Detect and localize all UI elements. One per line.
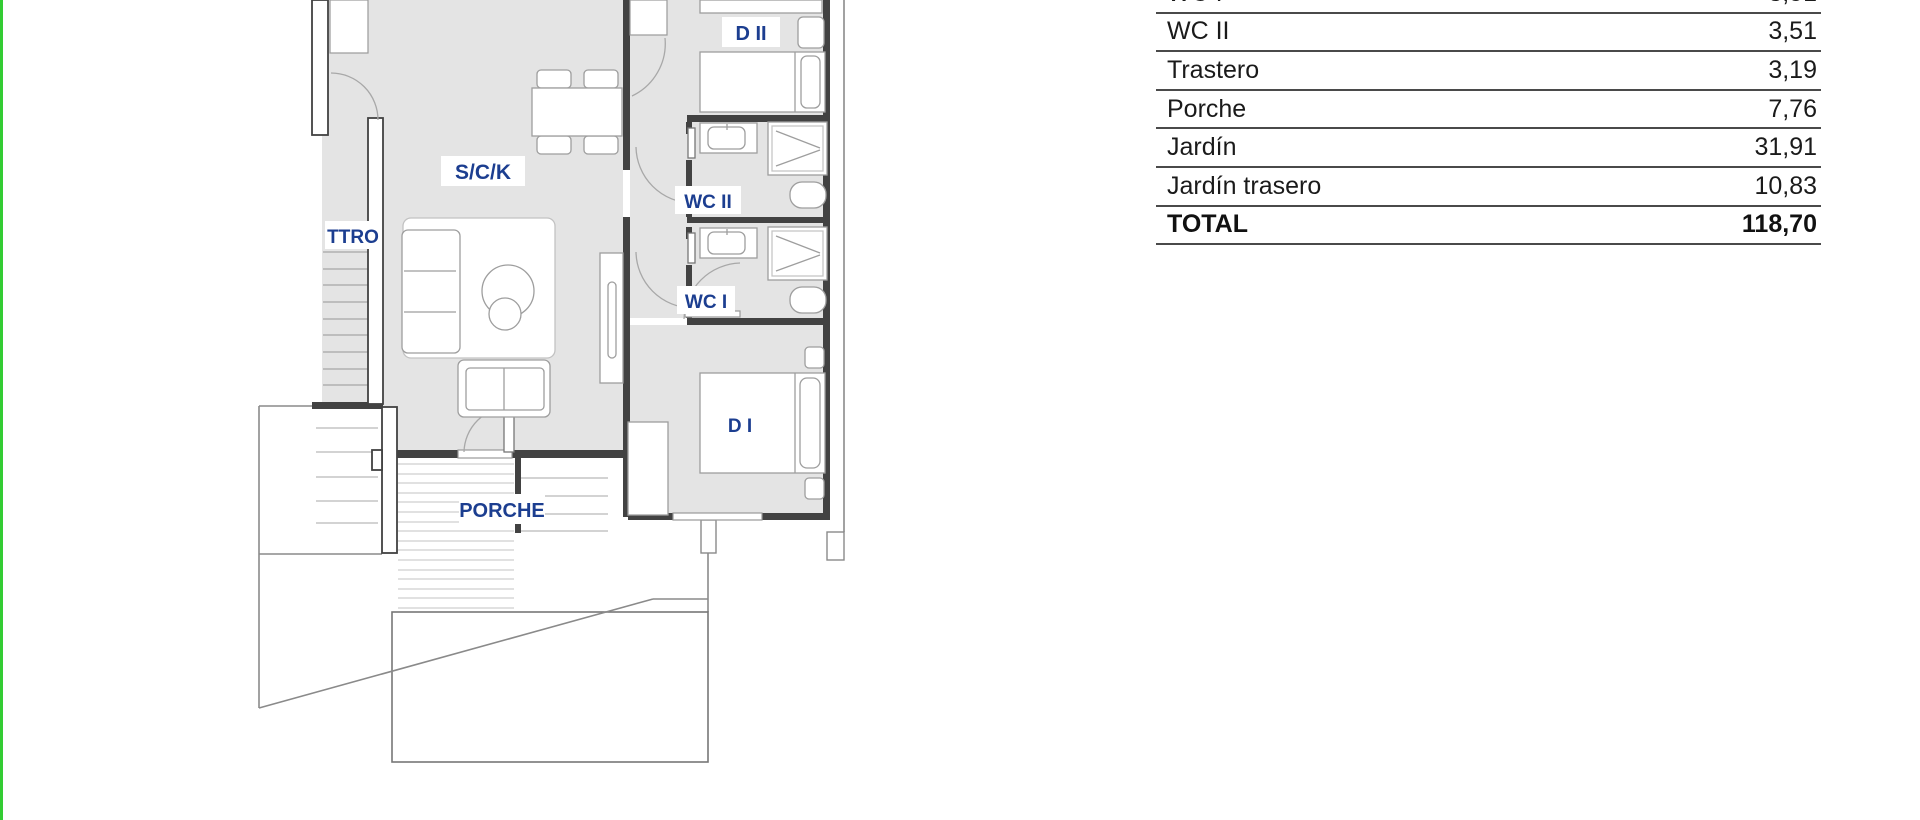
area-table-rows: WC I 3,51 WC II 3,51 Trastero 3,19 Porch… [1156, 0, 1821, 245]
label-bathroom2: WC II [675, 186, 741, 214]
table-row: WC I 3,51 [1156, 0, 1821, 14]
row-value: 3,51 [1768, 0, 1817, 8]
row-label: Trastero [1167, 56, 1259, 85]
porch-decking [398, 464, 514, 608]
row-label: WC II [1167, 17, 1230, 46]
hall-wardrobe [600, 253, 623, 383]
table-row: Trastero 3,19 [1156, 52, 1821, 91]
bathroom1-label: WC I [685, 292, 727, 313]
living-label: S/C/K [455, 161, 511, 184]
exterior-steps [316, 428, 378, 523]
label-bedroom2: D II [722, 17, 780, 47]
row-label: Porche [1167, 95, 1246, 124]
page: { "page": { "left_border_color": "#33cc3… [0, 0, 1920, 820]
label-bedroom1: D I [715, 410, 765, 438]
porch-label: PORCHE [459, 500, 545, 522]
table-row: Jardín trasero 10,83 [1156, 168, 1821, 207]
row-label: WC I [1167, 0, 1223, 8]
area-table: WC I 3,51 WC II 3,51 Trastero 3,19 Porch… [1156, 0, 1821, 250]
bedroom1-label: D I [728, 416, 752, 437]
table-row: Jardín 31,91 [1156, 129, 1821, 168]
row-value: 3,19 [1768, 56, 1817, 85]
table-total-row: TOTAL 118,70 [1156, 207, 1821, 246]
label-porch: PORCHE [459, 494, 545, 524]
row-value: 7,76 [1768, 95, 1817, 124]
bedroom2-label: D II [735, 23, 766, 45]
total-value: 118,70 [1742, 210, 1817, 239]
table-row: WC II 3,51 [1156, 14, 1821, 53]
row-value: 10,83 [1754, 172, 1817, 201]
label-living: S/C/K [441, 156, 525, 186]
label-storage: TTRO [325, 221, 381, 249]
row-value: 31,91 [1754, 133, 1817, 162]
storage-label: TTRO [327, 227, 379, 248]
label-bathroom1: WC I [677, 286, 735, 314]
row-label: Jardín [1167, 133, 1236, 162]
table-row: Porche 7,76 [1156, 91, 1821, 130]
row-value: 3,51 [1768, 17, 1817, 46]
bathroom2-label: WC II [684, 192, 732, 213]
total-label: TOTAL [1167, 210, 1248, 239]
row-label: Jardín trasero [1167, 172, 1321, 201]
